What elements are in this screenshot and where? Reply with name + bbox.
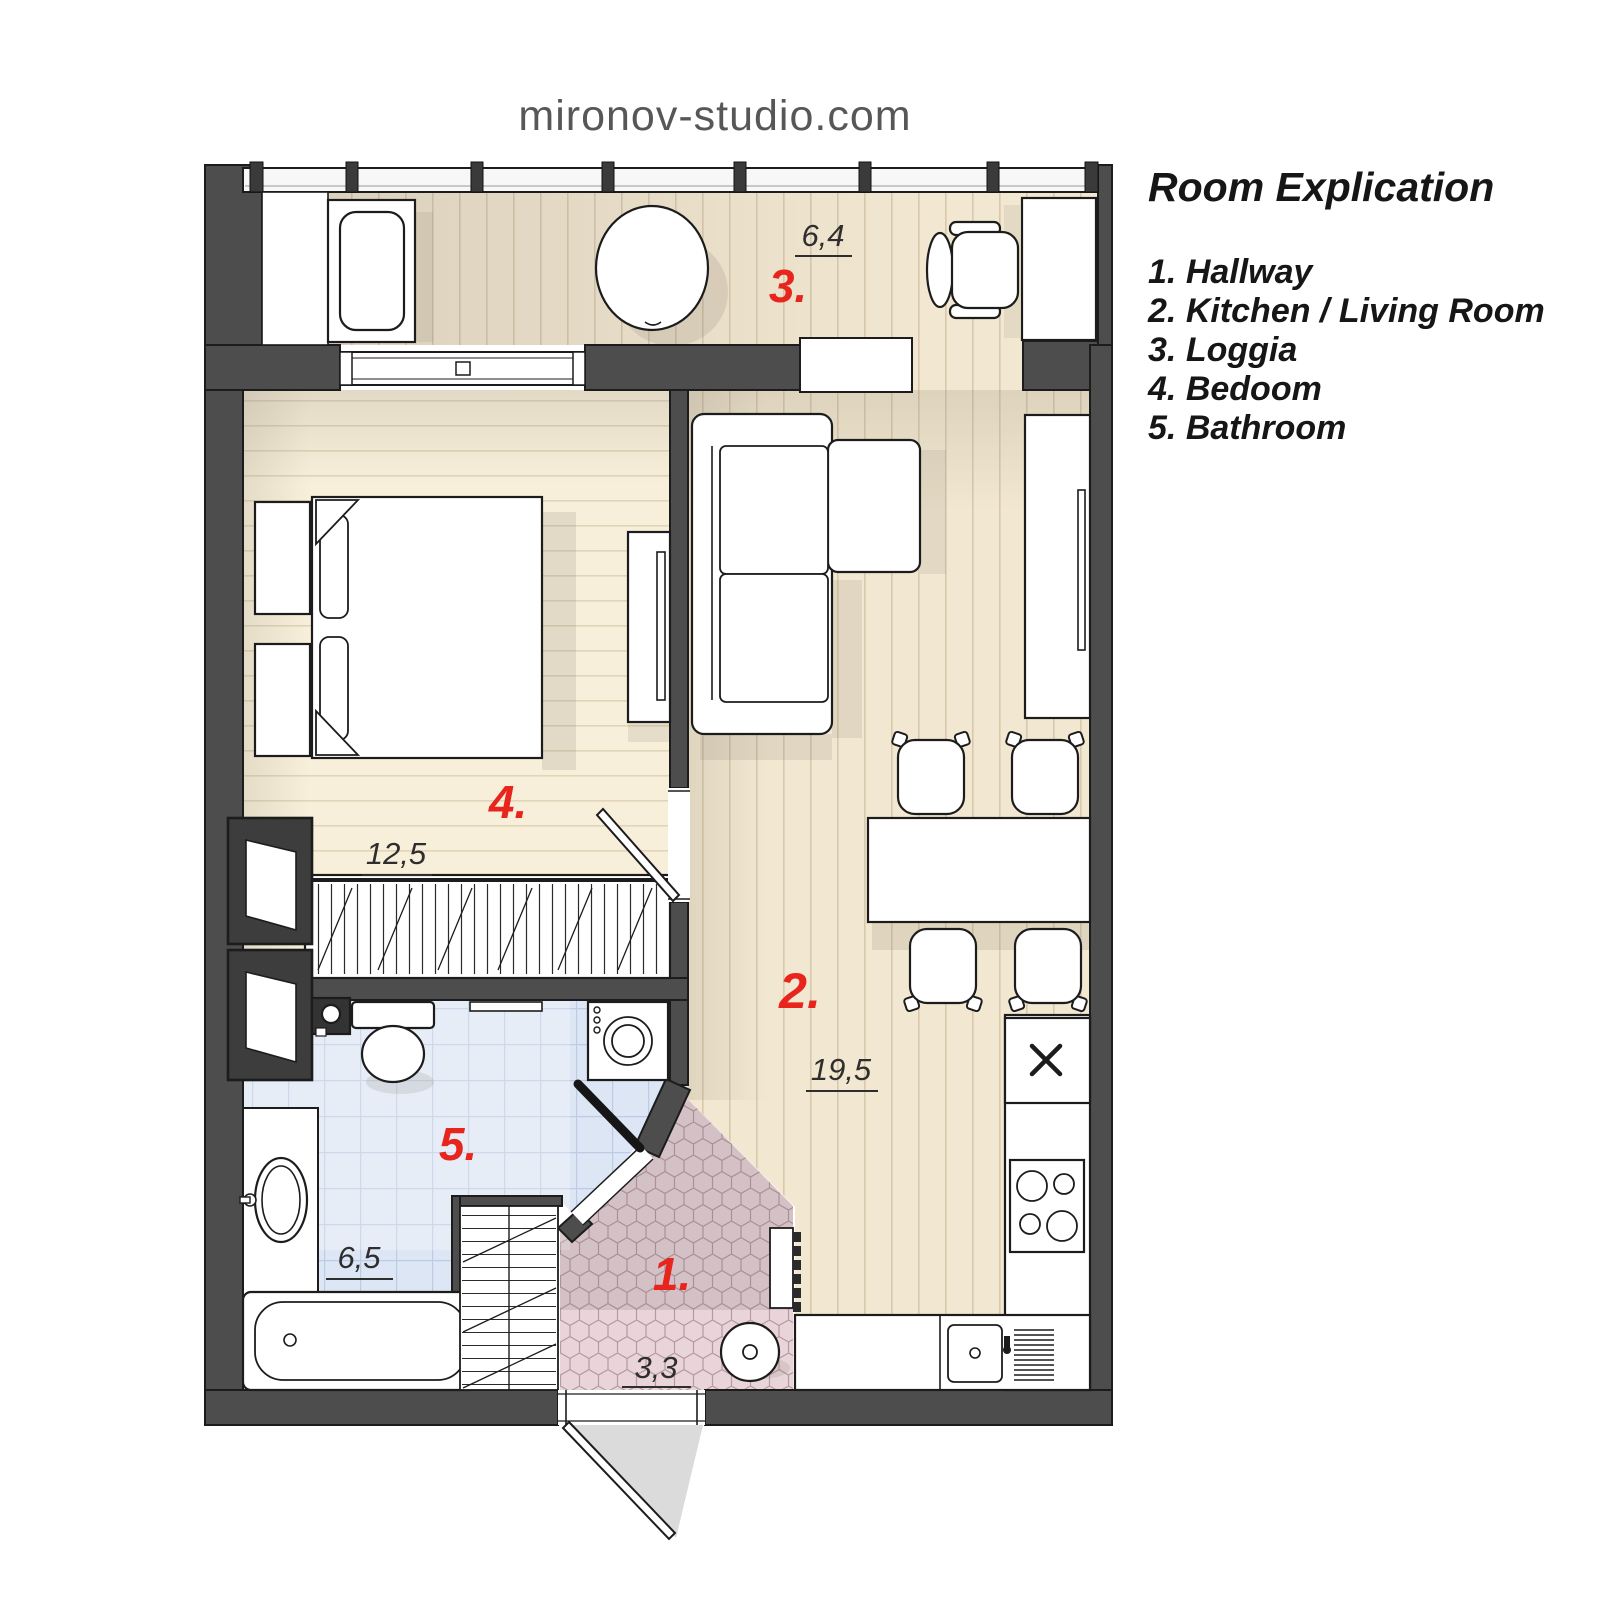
site-title: mironov-studio.com <box>400 92 1030 141</box>
loggia-cabinet <box>262 192 328 345</box>
legend-item-loggia: 3. Loggia <box>1148 331 1588 370</box>
nightstand <box>255 644 310 756</box>
room-number-hallway: 1. <box>653 1248 691 1300</box>
dining-chair <box>1005 731 1084 814</box>
area-hallway: 3,3 <box>634 1350 677 1385</box>
wall-bottom-left <box>205 1390 558 1425</box>
loggia-bench-cabinet <box>800 338 912 392</box>
room-number-bathroom: 5. <box>439 1118 477 1170</box>
area-bathroom: 6,5 <box>337 1240 381 1275</box>
legend-items: 1. Hallway 2. Kitchen / Living Room 3. L… <box>1148 253 1588 448</box>
desk-chair <box>927 222 1018 318</box>
wall-loggia-bottom-left <box>205 345 340 390</box>
entry-closet <box>460 1206 558 1390</box>
bed <box>312 497 542 758</box>
room-number-kitchen-living: 2. <box>778 963 821 1019</box>
bathroom-sink-counter <box>240 1108 318 1298</box>
loggia-glazing <box>243 168 1098 192</box>
bedroom-window <box>340 352 585 385</box>
kitchen-counter-bottom <box>795 1315 1090 1390</box>
towel-rail <box>470 1002 542 1011</box>
dining-chair <box>891 731 970 814</box>
tv-icon <box>1078 490 1085 650</box>
room-number-bedroom: 4. <box>488 776 527 828</box>
room-explication-legend: Room Explication 1. Hallway 2. Kitchen /… <box>1148 164 1588 448</box>
wall-right-top <box>1098 165 1112 345</box>
tv-cabinet-bedroom <box>628 532 670 722</box>
room-number-loggia: 3. <box>769 260 807 312</box>
area-loggia: 6,4 <box>801 218 844 253</box>
legend-item-kitchen-living: 2. Kitchen / Living Room <box>1148 292 1588 331</box>
wall-closet-top <box>452 1196 562 1206</box>
legend-item-bathroom: 5. Bathroom <box>1148 409 1588 448</box>
bathtub <box>243 1292 478 1390</box>
dryer-unit <box>328 200 415 342</box>
wall-bottom-right <box>705 1390 1112 1425</box>
corner-washbasin <box>312 998 350 1036</box>
nightstand <box>255 502 310 614</box>
round-table <box>596 206 708 330</box>
wardrobe-closet-bedroom <box>305 875 670 978</box>
loggia-desk <box>1022 198 1096 340</box>
cooktop <box>1010 1160 1084 1252</box>
tv-cabinet-living <box>1025 415 1090 718</box>
tv-icon <box>657 552 665 700</box>
wall-right <box>1090 345 1112 1425</box>
dining-chair <box>903 929 982 1012</box>
legend-title: Room Explication <box>1148 164 1588 211</box>
page: mironov-studio.com Room Explication 1. H… <box>0 0 1600 1600</box>
dining-table <box>868 818 1090 922</box>
washing-machine <box>588 1002 668 1080</box>
hall-stool <box>721 1323 779 1381</box>
wall-divider-upper <box>670 390 688 788</box>
area-bedroom: 12,5 <box>366 836 427 871</box>
wardrobe-left <box>228 818 312 1080</box>
dining-chair <box>1008 929 1087 1012</box>
legend-item-hallway: 1. Hallway <box>1148 253 1588 292</box>
legend-item-bedroom: 4. Bedoom <box>1148 370 1588 409</box>
wall-loggia-bottom-mid <box>585 345 800 390</box>
area-kitchen-living: 19,5 <box>811 1052 872 1087</box>
